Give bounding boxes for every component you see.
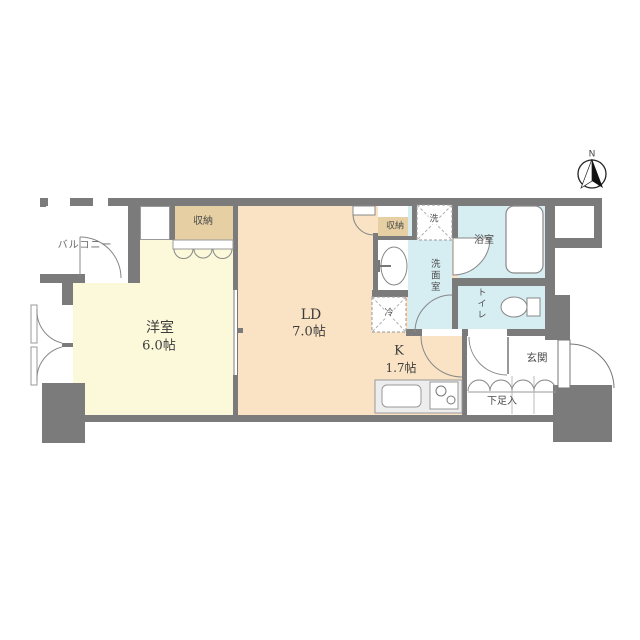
closet-ld-label: 収納 <box>386 223 404 232</box>
toilet-label: トイレ <box>476 288 485 321</box>
fridge-label: 冷 <box>383 310 394 319</box>
compass-icon <box>578 159 606 188</box>
shoe-cabinet-doors <box>468 376 556 414</box>
western-room-label: 洋室 <box>146 321 174 335</box>
compass-north-label: N <box>589 151 596 160</box>
closet-ld-door <box>353 206 375 235</box>
balcony-label: バルコニー <box>58 241 113 251</box>
washer-label: 洗 <box>428 216 439 225</box>
washroom-door-swing <box>415 295 462 377</box>
entrance-label: 玄関 <box>527 353 548 364</box>
closet-west-label: 収納 <box>193 217 213 227</box>
kitchen-label: K <box>394 345 404 358</box>
wash-basin <box>378 247 407 285</box>
floor-plan: バルコニー 洋室 6.0帖 LD 7.0帖 K 1.7帖 収納 収納 洗 冷 洗… <box>0 0 640 640</box>
kitchen-size: 1.7帖 <box>385 362 416 374</box>
bathroom-label: 浴室 <box>474 236 494 246</box>
western-room-size: 6.0帖 <box>142 340 176 353</box>
toilet-bowl <box>501 297 540 317</box>
sliding-door <box>234 290 243 375</box>
washroom-label: 洗面室 <box>429 259 439 294</box>
kitchen-counter <box>375 380 462 413</box>
bathtub <box>506 206 543 273</box>
shoe-cabinet-label: 下足入 <box>487 397 517 407</box>
west-casement-windows <box>31 305 62 385</box>
living-dining-size: 7.0帖 <box>292 326 326 339</box>
entrance-door <box>558 340 614 388</box>
closet-west-folding-door <box>173 240 233 259</box>
toilet-door <box>469 337 508 375</box>
living-dining-label: LD <box>301 308 322 322</box>
